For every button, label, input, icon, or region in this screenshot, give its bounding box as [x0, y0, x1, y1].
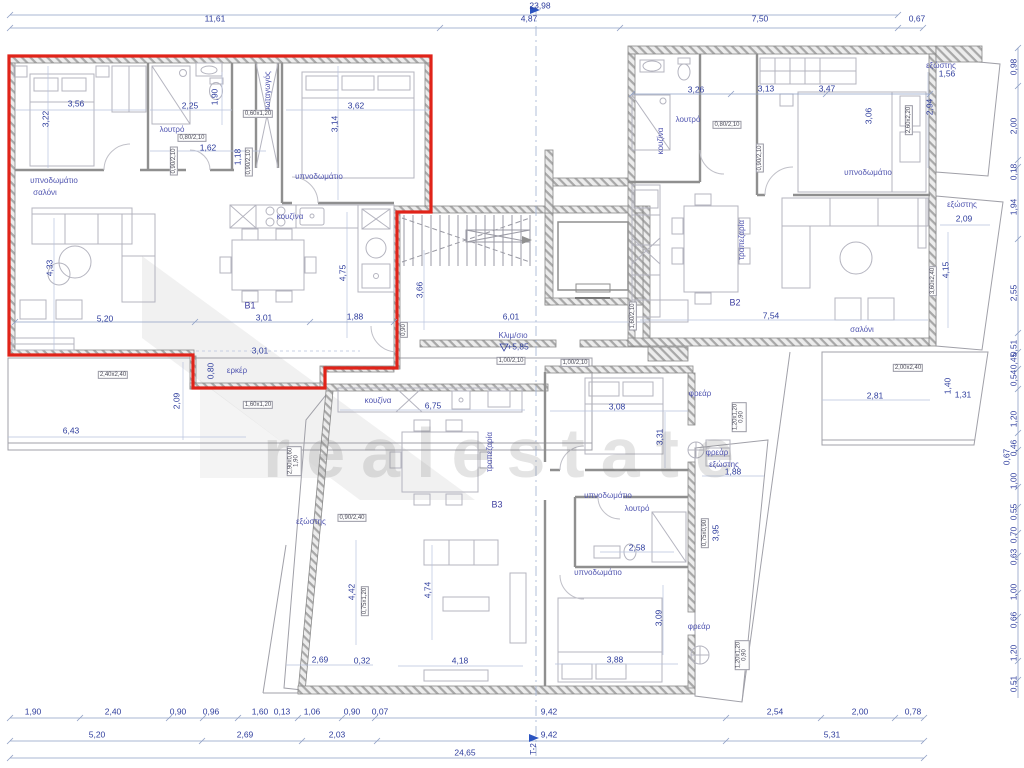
floor-plan: realestate 23,9811,614,877,500,673,563,2… — [0, 0, 1024, 768]
grid-axis-line — [529, 6, 540, 758]
floor-plan-drawing — [0, 0, 1024, 768]
staircase — [402, 215, 532, 266]
elevator — [558, 222, 628, 298]
